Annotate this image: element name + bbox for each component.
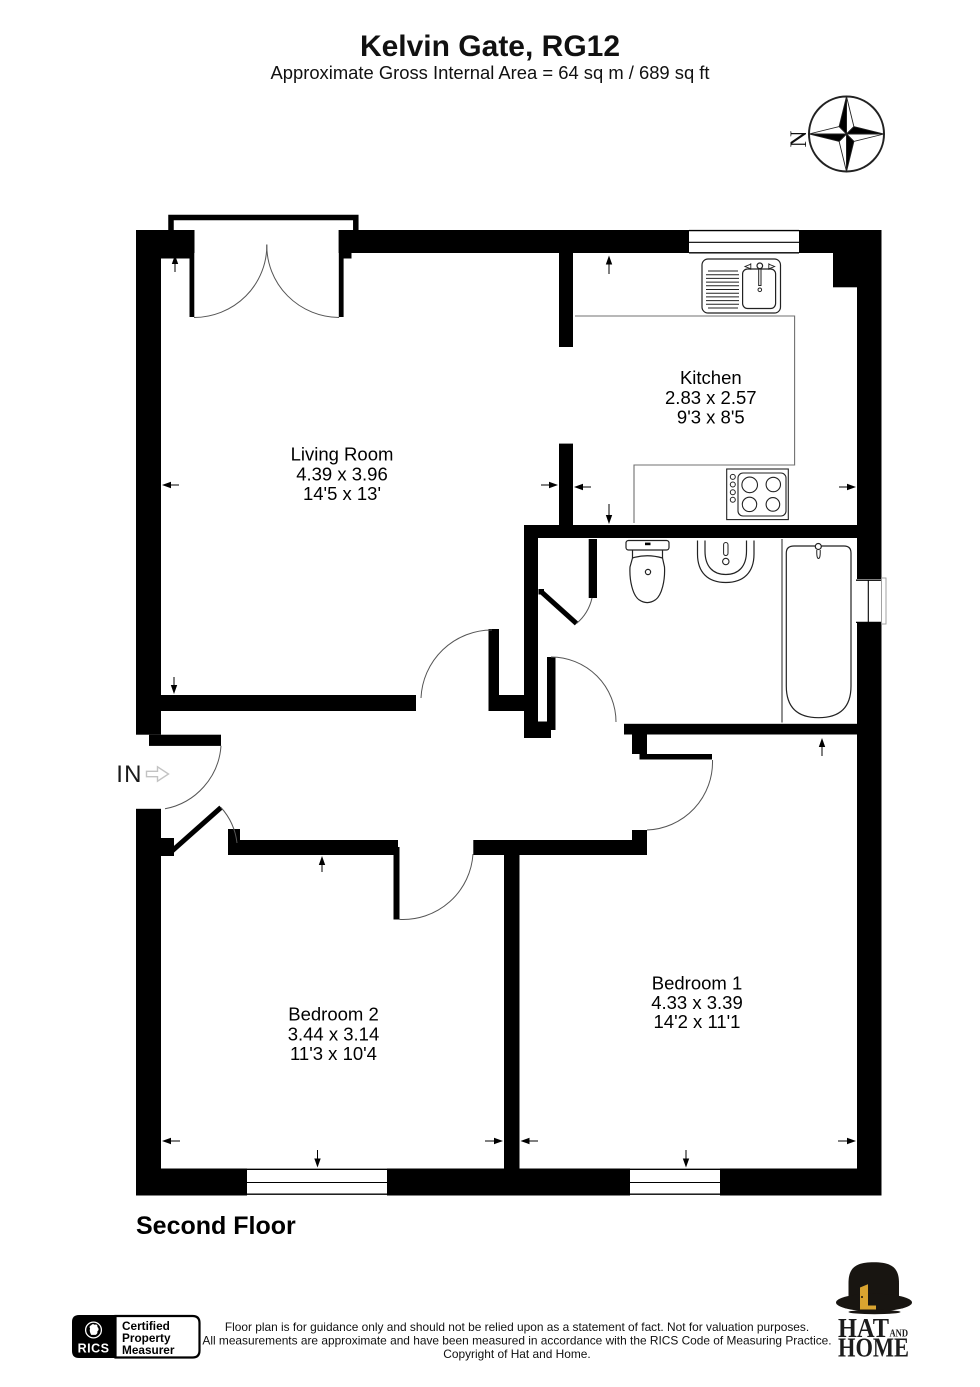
svg-text:HOME: HOME bbox=[838, 1333, 909, 1363]
svg-text:Approximate Gross Internal Are: Approximate Gross Internal Area = 64 sq … bbox=[270, 62, 709, 83]
svg-text:Second Floor: Second Floor bbox=[136, 1212, 296, 1240]
svg-text:N: N bbox=[786, 130, 812, 147]
svg-text:11'3 x 10'4: 11'3 x 10'4 bbox=[290, 1043, 377, 1064]
svg-text:Floor plan is for guidance onl: Floor plan is for guidance only and shou… bbox=[225, 1320, 809, 1334]
svg-text:IN: IN bbox=[116, 761, 142, 788]
svg-text:Kelvin Gate, RG12: Kelvin Gate, RG12 bbox=[360, 30, 620, 63]
svg-text:Living Room: Living Room bbox=[291, 444, 394, 465]
svg-text:3.44 x 3.14: 3.44 x 3.14 bbox=[288, 1023, 380, 1044]
svg-text:14'5 x 13': 14'5 x 13' bbox=[303, 483, 381, 504]
svg-text:RICS: RICS bbox=[78, 1342, 110, 1356]
svg-text:9'3 x 8'5: 9'3 x 8'5 bbox=[677, 406, 745, 427]
svg-text:Measurer: Measurer bbox=[122, 1343, 175, 1357]
svg-text:All measurements are approxima: All measurements are approximate and hav… bbox=[202, 1334, 831, 1348]
svg-text:14'2 x 11'1: 14'2 x 11'1 bbox=[654, 1011, 741, 1032]
svg-text:Kitchen: Kitchen bbox=[680, 367, 742, 388]
svg-text:4.33 x 3.39: 4.33 x 3.39 bbox=[651, 992, 743, 1013]
svg-text:2.83 x 2.57: 2.83 x 2.57 bbox=[665, 387, 757, 408]
svg-text:Bedroom 1: Bedroom 1 bbox=[652, 972, 743, 993]
svg-text:4.39 x 3.96: 4.39 x 3.96 bbox=[296, 464, 388, 485]
svg-text:Bedroom 2: Bedroom 2 bbox=[288, 1003, 379, 1024]
svg-text:Copyright of Hat and Home.: Copyright of Hat and Home. bbox=[443, 1347, 590, 1361]
